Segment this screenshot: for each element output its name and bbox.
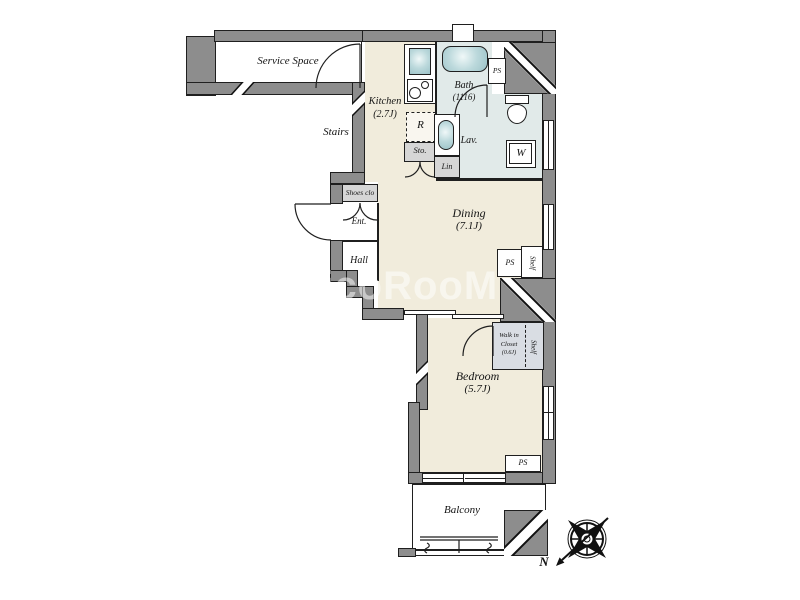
floor-plan: R Sto. Lin PS W Shoes clo PS Shelf Walk … bbox=[0, 0, 800, 600]
sliding-door-panel bbox=[404, 310, 456, 315]
shoes-closet-label: Shoes clo bbox=[343, 188, 377, 197]
bedroom-size: (5.7J) bbox=[430, 383, 525, 396]
toilet-tank bbox=[505, 95, 529, 104]
window-sash-line bbox=[544, 412, 553, 413]
dining-size: (7.1J) bbox=[428, 220, 510, 233]
balcony-block-hatched bbox=[504, 510, 548, 556]
wall-segment bbox=[416, 314, 428, 410]
compass-icon bbox=[556, 518, 608, 566]
dining-label-group: Dining (7.1J) bbox=[428, 206, 510, 234]
washer-label: W bbox=[507, 147, 535, 160]
linen-box: Lin bbox=[434, 156, 460, 178]
kitchen-label: Kitchen bbox=[356, 96, 414, 109]
linen-label: Lin bbox=[435, 162, 459, 172]
window-sash-line bbox=[465, 478, 505, 479]
wall-segment bbox=[214, 30, 364, 42]
shelf-mid-box: Shelf bbox=[521, 246, 543, 278]
corner-block-hatched bbox=[504, 42, 556, 94]
wall-segment bbox=[330, 172, 365, 184]
walk-in-closet-label-line2: Closet bbox=[493, 341, 525, 349]
refrigerator-label: R bbox=[407, 119, 434, 132]
wall-segment bbox=[398, 548, 416, 557]
window-sash-line bbox=[423, 478, 463, 479]
wall-segment bbox=[362, 308, 404, 320]
ps-top-box: PS bbox=[488, 58, 506, 84]
compass-north-label: N bbox=[536, 554, 552, 570]
kitchen-label-group: Kitchen (2.7J) bbox=[356, 96, 414, 121]
stove-burner-icon bbox=[421, 81, 429, 89]
balcony-sliding-window bbox=[422, 473, 506, 483]
watermark: MicoRooM bbox=[288, 264, 498, 309]
walk-in-closet-label-line1: Walk in bbox=[493, 332, 525, 340]
bath-size: (1116) bbox=[438, 92, 490, 103]
service-space-label: Service Space bbox=[214, 55, 362, 68]
window-dining bbox=[543, 204, 554, 250]
ps-bottom-box: PS bbox=[505, 455, 541, 472]
lav-dining-partition bbox=[436, 178, 543, 181]
window-bump-bath bbox=[452, 24, 474, 42]
storage-label: Sto. bbox=[405, 145, 435, 155]
shelf-mid-label: Shelf bbox=[528, 249, 536, 277]
ent-hall-step-line bbox=[342, 240, 377, 242]
walk-in-closet-box: Walk in Closet (0.6J) Shelf bbox=[492, 322, 544, 370]
washer-space: W bbox=[506, 140, 536, 168]
shoes-closet-box: Shoes clo bbox=[342, 184, 378, 202]
ps-mid-label: PS bbox=[498, 258, 522, 268]
shelf-closet-label: Shelf bbox=[529, 332, 537, 362]
walk-in-closet-size: (0.6J) bbox=[493, 350, 525, 357]
ps-bottom-label: PS bbox=[506, 458, 540, 468]
window-mullion bbox=[548, 205, 549, 249]
stairs-label: Stairs bbox=[300, 126, 372, 139]
window-mullion bbox=[548, 121, 549, 169]
bedroom-label-group: Bedroom (5.7J) bbox=[430, 369, 525, 397]
window-mullion bbox=[463, 474, 464, 482]
kitchen-sink bbox=[409, 48, 431, 75]
kitchen-size: (2.7J) bbox=[356, 109, 414, 121]
dining-label: Dining bbox=[428, 206, 510, 220]
sliding-door-panel bbox=[452, 314, 504, 319]
ps-top-label: PS bbox=[489, 66, 505, 75]
window-lav bbox=[543, 120, 554, 170]
entrance-label: Ent. bbox=[341, 216, 377, 227]
bath-label: Bath bbox=[438, 80, 490, 92]
bath-label-group: Bath (1116) bbox=[438, 80, 490, 103]
window-mullion bbox=[548, 387, 549, 439]
closet-dashed-divider bbox=[525, 325, 526, 367]
bedroom-label: Bedroom bbox=[430, 369, 525, 383]
bathtub bbox=[442, 46, 488, 72]
mid-block-hatched bbox=[500, 278, 556, 322]
window-bedroom bbox=[543, 386, 554, 440]
ps-mid-box: PS bbox=[497, 249, 523, 277]
balcony-label: Balcony bbox=[418, 504, 506, 517]
storage-box: Sto. bbox=[404, 142, 436, 162]
lav-label: Lav. bbox=[446, 135, 492, 147]
wall-segment bbox=[186, 82, 364, 95]
